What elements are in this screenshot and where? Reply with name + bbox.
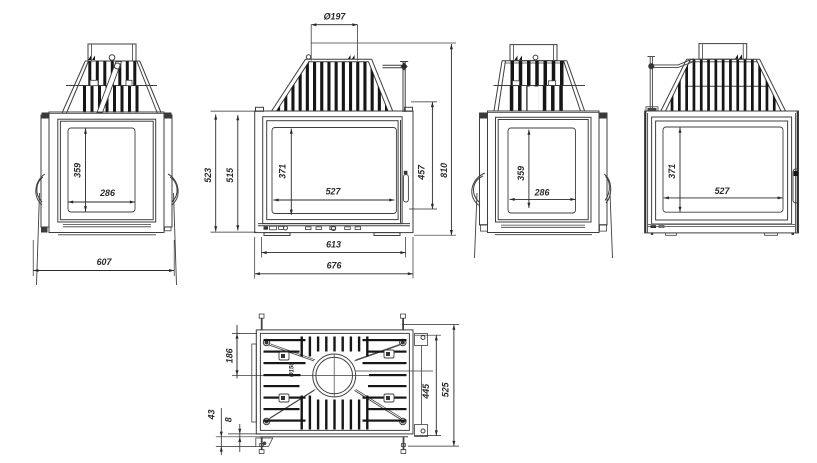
svg-text:523: 523 <box>203 168 213 183</box>
svg-text:613: 613 <box>326 240 341 250</box>
svg-text:359: 359 <box>516 166 526 181</box>
svg-text:Ø150: Ø150 <box>289 362 295 377</box>
svg-text:527: 527 <box>326 187 342 197</box>
svg-text:515: 515 <box>225 167 235 183</box>
svg-text:810: 810 <box>439 163 449 178</box>
svg-text:527: 527 <box>715 186 731 196</box>
svg-text:457: 457 <box>417 164 427 181</box>
svg-text:371: 371 <box>667 164 677 179</box>
svg-text:8: 8 <box>224 417 234 422</box>
svg-text:Ø197: Ø197 <box>324 11 347 21</box>
svg-text:286: 286 <box>534 188 550 198</box>
svg-text:676: 676 <box>327 261 342 271</box>
svg-text:607: 607 <box>97 257 113 267</box>
svg-text:359: 359 <box>73 163 83 178</box>
svg-text:286: 286 <box>99 188 115 198</box>
svg-text:445: 445 <box>421 383 431 400</box>
svg-text:43: 43 <box>206 410 216 421</box>
svg-text:186: 186 <box>225 348 235 363</box>
svg-text:371: 371 <box>277 164 287 179</box>
svg-text:525: 525 <box>440 381 450 397</box>
